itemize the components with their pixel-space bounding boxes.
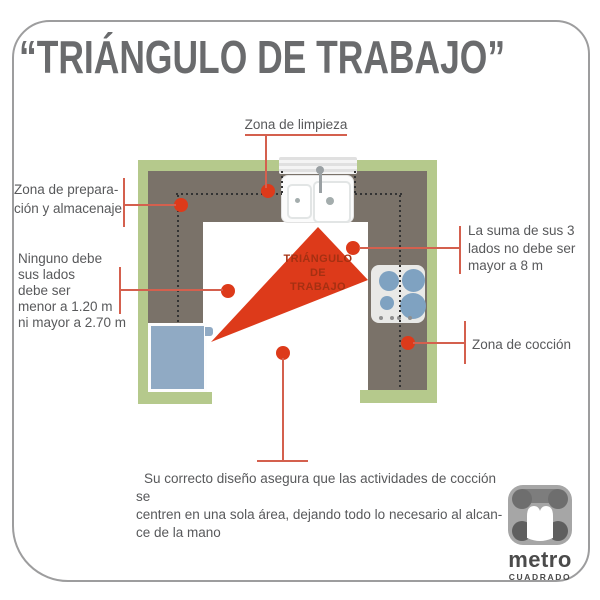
work-path-dotted <box>354 171 356 193</box>
label-suma-lados: La suma de sus 3 lados no debe ser mayor… <box>468 222 590 275</box>
work-triangle-label: TRIÁNGULO DE TRABAJO <box>280 252 356 294</box>
label-zona-coccion: Zona de cocción <box>472 336 592 353</box>
callout-line-limpieza <box>265 136 267 188</box>
metro-cuadrado-logo-icon <box>505 484 575 550</box>
label-lados: Ninguno debe sus lados debe ser menor a … <box>18 251 150 331</box>
burner-icon <box>380 296 394 310</box>
faucet-head-icon <box>316 166 324 174</box>
callout-line-suma <box>459 226 461 274</box>
logo-name: metro <box>503 548 577 572</box>
work-path-dotted <box>281 171 283 193</box>
label-zona-preparacion: Zona de prepara- ción y almacenaje <box>14 181 134 218</box>
burner-icon <box>400 293 426 319</box>
callout-line-limpieza <box>245 134 347 136</box>
work-path-dotted <box>355 193 402 195</box>
burner-icon <box>402 269 425 292</box>
callout-line-coccion <box>464 321 466 364</box>
page-title: “TRIÁNGULO DE TRABAJO” <box>19 34 505 80</box>
wall-bottom-right <box>360 390 437 403</box>
sink-drain-large <box>326 197 334 205</box>
sink-drain-small <box>295 198 300 203</box>
counter-left <box>148 222 203 323</box>
zone-dot-suma <box>346 241 360 255</box>
wall-bottom-left <box>138 392 212 404</box>
callout-line-coccion <box>413 342 465 344</box>
fridge-icon <box>148 323 207 392</box>
work-path-dotted <box>399 195 401 388</box>
footer-text: Su correcto diseño asegura que las activ… <box>136 470 504 542</box>
stove-knob-icon <box>408 316 412 320</box>
burner-icon <box>379 271 399 291</box>
stove-knob-icon <box>379 316 383 320</box>
callout-line-footer <box>257 460 308 462</box>
wall-right <box>427 160 437 403</box>
stove-knob-icon <box>390 316 394 320</box>
callout-line-suma <box>359 247 460 249</box>
zone-dot-preparacion <box>174 198 188 212</box>
label-zona-limpieza: Zona de limpieza <box>230 116 362 133</box>
zone-dot-limpieza <box>261 184 275 198</box>
stove-icon <box>371 265 425 323</box>
work-path-dotted <box>177 195 179 322</box>
sink-icon <box>281 175 354 223</box>
logo-subname: CUADRADO <box>503 572 577 582</box>
fridge-handle-icon <box>205 327 213 336</box>
callout-line-footer <box>282 358 284 461</box>
zone-dot-lados <box>221 284 235 298</box>
